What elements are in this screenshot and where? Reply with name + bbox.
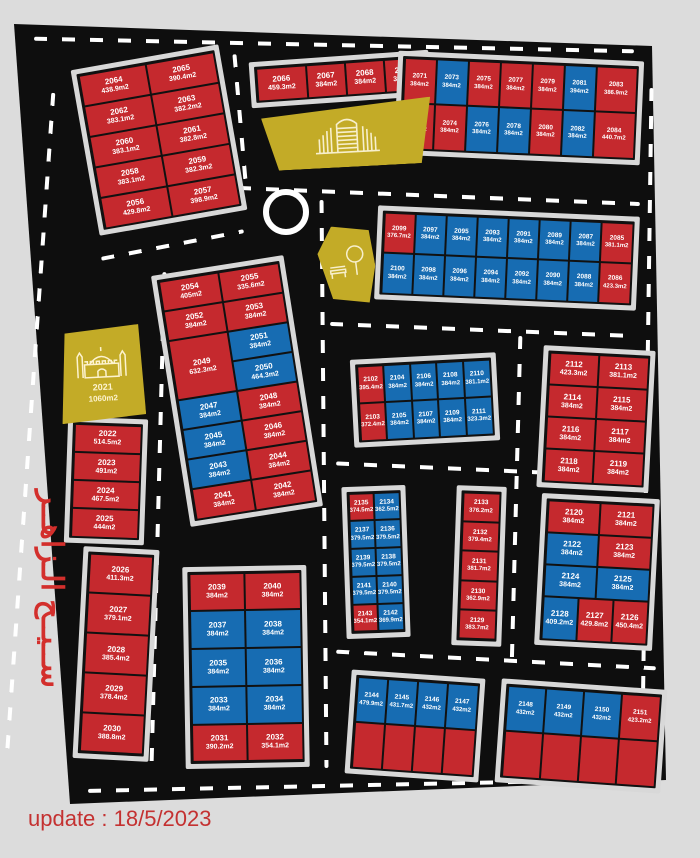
plot-2134: 2134362.5m2: [375, 493, 399, 520]
plot-2099: 2099376.7m2: [384, 213, 415, 253]
mosque-icon: [72, 343, 130, 384]
plot-2131: 2131381.7m2: [461, 552, 497, 581]
plot-2038: 2038384m2: [246, 610, 300, 647]
block-2129-2133: 2133376.2m22132379.4m22131381.7m22130362…: [451, 485, 507, 647]
plot-2030: 2030388.8m2: [80, 713, 143, 754]
plot-2032: 2032354.1m2: [248, 724, 302, 761]
block-2134-2143: 2135374.5m22134362.5m22137379.5m22136379…: [341, 485, 410, 639]
plot-2125: 2125384m2: [597, 568, 649, 601]
block-2112-2119: 2112423.3m22113381.1m22114384m22115384m2…: [536, 345, 655, 493]
plot-2075: 2075384m2: [468, 61, 500, 106]
mosque-area: 1060m2: [88, 393, 118, 405]
plot-unlabeled: [579, 737, 618, 783]
plot-2150: 2150432m2: [582, 692, 621, 738]
plot-2076: 2076384m2: [466, 107, 498, 152]
plot-2105: 2105384m2: [386, 402, 412, 439]
plot-2113: 2113381.1m2: [599, 356, 648, 389]
plot-2123: 2123384m2: [598, 536, 650, 569]
plot-2077: 2077384m2: [500, 63, 532, 108]
plot-2040: 2040384m2: [245, 573, 299, 610]
plot-2067: 2067384m2: [307, 63, 346, 97]
block-2071-2084: 2071384m22073384m22075384m22077384m22079…: [394, 51, 644, 166]
plot-2142: 2142369.9m2: [378, 604, 402, 631]
plot-2118: 2118384m2: [544, 450, 593, 483]
plot-unlabeled: [503, 732, 542, 778]
plot-2149: 2149432m2: [544, 689, 583, 735]
plot-unlabeled: [541, 734, 580, 780]
plot-2033: 2033384m2: [192, 687, 246, 724]
plot-2114: 2114384m2: [548, 385, 597, 418]
plot-2079: 2079384m2: [532, 64, 564, 109]
plot-2073: 2073384m2: [436, 60, 468, 105]
plot-2151: 2151423.2m2: [620, 694, 659, 740]
plot-2136: 2136379.5m2: [376, 520, 400, 547]
plot-2108: 2108384m2: [437, 362, 463, 399]
plot-2096: 2096384m2: [444, 256, 475, 296]
roundabout: [263, 189, 309, 235]
plot-2145: 2145431.7m2: [386, 680, 417, 725]
plot-2029: 2029378.4m2: [82, 673, 145, 714]
plot-2037: 2037384m2: [191, 611, 245, 648]
plot-2133: 2133376.2m2: [463, 493, 499, 522]
plot-2141: 2141379.5m2: [352, 577, 376, 604]
plot-2146: 2146432m2: [416, 682, 447, 727]
plot-2087: 2087384m2: [570, 221, 601, 261]
plot-2078: 2078384m2: [498, 108, 530, 153]
plot-2028: 2028385.4m2: [85, 634, 148, 675]
plot-2119: 2119384m2: [594, 452, 643, 485]
plot-2088: 2088384m2: [568, 262, 599, 302]
plot-2120: 2120384m2: [548, 501, 600, 534]
plot-unlabeled: [617, 740, 656, 786]
plot-2027: 2027379.1m2: [87, 594, 150, 635]
update-date-label: update : 18/5/2023: [28, 806, 212, 832]
plot-2082: 2082384m2: [562, 111, 594, 156]
plot-2135: 2135374.5m2: [349, 494, 373, 521]
plot-2104: 2104384m2: [384, 364, 410, 401]
plot-2022: 2022514.5m2: [75, 424, 141, 453]
plot-2089: 2089384m2: [539, 220, 570, 260]
plot-2117: 2117384m2: [595, 420, 644, 453]
plot-2112: 2112423.3m2: [549, 353, 598, 386]
plot-2083: 2083386.9m2: [595, 67, 636, 112]
plot-2026: 2026411.3m2: [89, 554, 152, 595]
tree-bench-icon: [322, 238, 372, 293]
plot-2100: 2100384m2: [382, 254, 413, 294]
block-2102-2111: 2102395.4m22104384m22106384m22108384m221…: [350, 352, 500, 448]
plot-2132: 2132379.4m2: [462, 522, 498, 551]
plot-2092: 2092384m2: [506, 259, 537, 299]
plot-2128: 2128409.2m2: [542, 597, 577, 639]
plot-2102: 2102395.4m2: [358, 366, 384, 403]
plot-2049: 2049632.3m2: [169, 333, 236, 400]
plot-2137: 2137379.5m2: [350, 521, 374, 548]
building-icon: [305, 109, 389, 159]
plot-2068: 2068384m2: [345, 61, 384, 95]
plot-2115: 2115384m2: [597, 388, 646, 421]
plot-2080: 2080384m2: [530, 110, 562, 155]
plot-2144: 2144479.9m2: [356, 677, 387, 722]
mosque-plot-2021: 2021 1060m2: [58, 324, 147, 424]
plot-2126: 2126450.4m2: [612, 601, 647, 643]
plot-2140: 2140379.5m2: [378, 576, 402, 603]
district-name-arabic: ســيــح الـزاهــر: [23, 439, 69, 739]
plot-2066: 2066459.3m2: [257, 66, 307, 100]
plot-2111: 2111323.3m2: [466, 398, 492, 435]
plot-2109: 2109384m2: [439, 399, 465, 436]
plot-2085: 2085381.1m2: [601, 223, 632, 263]
plot-2035: 2035384m2: [191, 649, 245, 686]
block-2144-2147: 2144479.9m22145431.7m22146432m22147432m2: [345, 669, 486, 782]
block-2120-2128: 2120384m22121384m22122384m22123384m22124…: [534, 493, 660, 651]
plot-2148: 2148432m2: [506, 686, 545, 732]
plot-2121: 2121384m2: [600, 504, 652, 537]
plot-2095: 2095384m2: [446, 216, 477, 256]
plot-2116: 2116384m2: [546, 417, 595, 450]
plot-2124: 2124384m2: [544, 565, 596, 598]
plot-2034: 2034384m2: [247, 686, 301, 723]
plot-2094: 2094384m2: [475, 258, 506, 298]
plot-2122: 2122384m2: [546, 533, 598, 566]
block-2056-2065: 2064438.9m22065390.4m22062383.1m22063382…: [71, 44, 248, 235]
plot-unlabeled: [353, 723, 384, 768]
plot-2081: 2081394m2: [564, 65, 596, 110]
plot-2023: 2023491m2: [74, 453, 140, 482]
plot-2039: 2039384m2: [190, 574, 244, 611]
block-2026-2030: 2026411.3m22027379.1m22028385.4m22029378…: [73, 546, 160, 762]
block-2022-2025: 2022514.5m22023491m22024467.5m22025444m2: [64, 417, 148, 546]
plot-2090: 2090384m2: [537, 260, 568, 300]
plot-2110: 2110381.1m2: [464, 360, 490, 397]
plot-2103: 2103372.4m2: [360, 403, 386, 440]
plot-map: 2064438.9m22065390.4m22062383.1m22063382…: [0, 0, 700, 858]
plot-2071: 2071384m2: [404, 59, 436, 104]
plot-2107: 2107384m2: [413, 400, 439, 437]
plot-unlabeled: [383, 725, 414, 770]
plot-2147: 2147432m2: [446, 684, 477, 729]
plot-2093: 2093384m2: [477, 217, 508, 257]
plot-2127: 2127429.8m2: [577, 599, 612, 641]
plot-unlabeled: [413, 727, 444, 772]
plot-2129: 2129383.7m2: [459, 610, 495, 639]
plot-2097: 2097384m2: [415, 215, 446, 255]
plot-2074: 2074384m2: [434, 105, 466, 150]
plot-2091: 2091384m2: [508, 219, 539, 259]
plot-2098: 2098384m2: [413, 255, 444, 295]
plot-2143: 2143354.1m2: [353, 605, 377, 632]
plot-2031: 2031390.2m2: [193, 725, 247, 762]
plot-2084: 2084440.7m2: [593, 112, 634, 157]
block-2031-2040: 2039384m22040384m22037384m22038384m22035…: [182, 565, 310, 769]
plot-2025: 2025444m2: [72, 509, 138, 538]
block-2085-2100: 2099376.7m22097384m22095384m22093384m220…: [374, 205, 640, 310]
plot-2086: 2086423.3m2: [600, 263, 631, 303]
plot-2139: 2139379.5m2: [351, 549, 375, 576]
plot-2036: 2036384m2: [247, 648, 301, 685]
plot-2024: 2024467.5m2: [73, 481, 139, 510]
block-2148-2151: 2148432m22149432m22150432m22151423.2m2: [495, 678, 668, 793]
plot-2138: 2138379.5m2: [377, 548, 401, 575]
plot-2106: 2106384m2: [411, 363, 437, 400]
plot-unlabeled: [443, 729, 474, 774]
plot-2130: 2130362.9m2: [460, 581, 496, 610]
